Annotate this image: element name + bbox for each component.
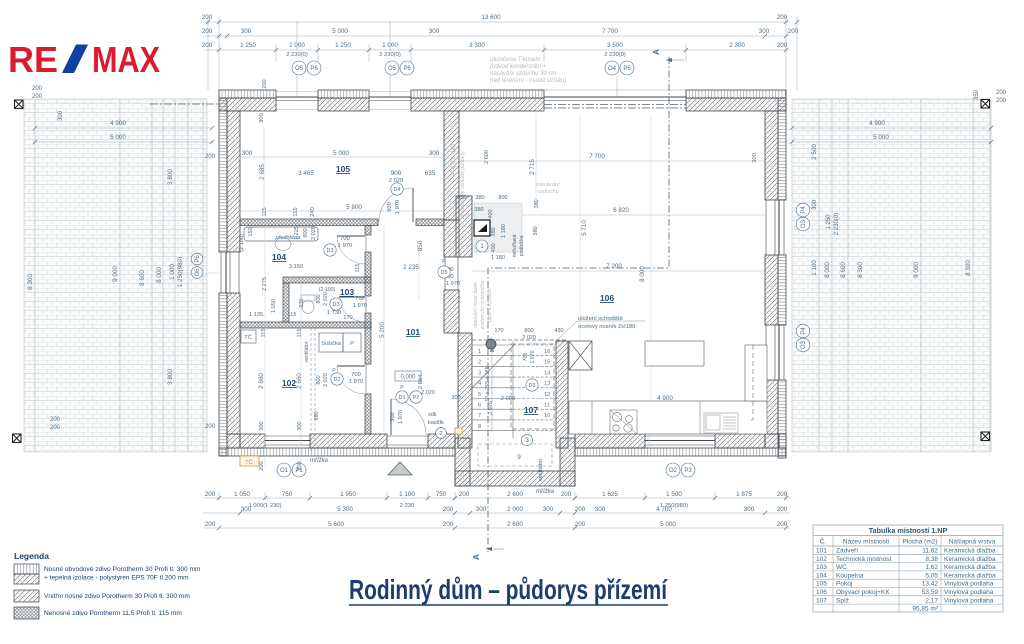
svg-text:TČ: TČ [244, 334, 252, 341]
svg-text:300: 300 [759, 28, 770, 35]
svg-text:2 020: 2 020 [323, 292, 329, 306]
svg-text:2: 2 [478, 360, 481, 366]
svg-text:103: 103 [340, 287, 354, 297]
svg-text:16: 16 [544, 349, 550, 355]
svg-text:1 250: 1 250 [826, 214, 832, 230]
svg-text:1 100: 1 100 [399, 491, 415, 498]
svg-text:1 050: 1 050 [271, 299, 277, 313]
svg-text:380: 380 [475, 195, 484, 201]
svg-text:8 000: 8 000 [824, 262, 831, 278]
svg-text:200: 200 [259, 461, 265, 470]
svg-text:115: 115 [288, 312, 297, 318]
svg-text:115: 115 [293, 207, 299, 216]
svg-text:200: 200 [205, 491, 216, 498]
svg-text:800: 800 [316, 294, 322, 303]
svg-text:Legenda: Legenda [14, 551, 49, 561]
svg-text:zvolen dle vybraného: zvolen dle vybraného [480, 280, 486, 330]
svg-text:3 465: 3 465 [298, 170, 314, 177]
svg-text:(2 100): (2 100) [239, 234, 245, 252]
svg-text:400: 400 [488, 209, 494, 218]
svg-text:1 135: 1 135 [249, 312, 264, 318]
svg-text:9 000: 9 000 [112, 266, 119, 282]
svg-text:O1: O1 [280, 468, 289, 474]
svg-text:380: 380 [491, 227, 497, 236]
svg-text:101: 101 [816, 548, 827, 555]
svg-text:mřížka: mřížka [310, 458, 329, 464]
svg-text:115: 115 [262, 207, 268, 216]
svg-text:Plocha (m2): Plocha (m2) [902, 539, 937, 546]
svg-text:P4: P4 [801, 327, 807, 335]
svg-text:ventilátor: ventilátor [538, 459, 544, 482]
svg-text:Zádveří: Zádveří [836, 548, 858, 555]
svg-text:200: 200 [262, 79, 268, 88]
svg-text:Nosné obvodové zdivo Porotherm: Nosné obvodové zdivo Porotherm 30 Profi … [44, 566, 201, 573]
svg-text:2 500: 2 500 [811, 144, 818, 160]
svg-text:1 970: 1 970 [353, 303, 367, 309]
svg-text:2 000: 2 000 [507, 506, 523, 513]
svg-text:kastlík: kastlík [428, 420, 444, 426]
svg-text:200: 200 [32, 94, 43, 100]
svg-text:2 300: 2 300 [729, 42, 745, 49]
svg-text:700: 700 [351, 372, 361, 378]
svg-text:106: 106 [816, 589, 827, 596]
svg-text:2: 2 [440, 431, 443, 437]
svg-text:(odvod kondenzátu +: (odvod kondenzátu + [490, 64, 547, 70]
svg-text:200: 200 [297, 461, 303, 470]
svg-text:7 700: 7 700 [602, 28, 618, 35]
svg-text:300: 300 [58, 110, 64, 121]
svg-text:700: 700 [340, 236, 350, 242]
svg-text:5 000: 5 000 [333, 150, 349, 157]
svg-text:380: 380 [534, 199, 540, 208]
svg-text:O6: O6 [195, 268, 201, 277]
svg-text:150: 150 [248, 227, 254, 236]
svg-text:850: 850 [417, 240, 424, 251]
svg-text:200: 200 [205, 154, 216, 160]
svg-text:900: 900 [391, 170, 402, 177]
svg-text:P5: P5 [623, 66, 631, 72]
svg-text:5 200: 5 200 [379, 322, 386, 338]
svg-text:380: 380 [533, 226, 539, 235]
svg-text:5 300: 5 300 [337, 506, 353, 513]
svg-text:Č.: Č. [820, 537, 827, 546]
svg-text:200: 200 [202, 42, 213, 49]
svg-text:1 970: 1 970 [338, 243, 353, 249]
svg-text:nad terénem - osadit stříšku): nad terénem - osadit stříšku) [490, 78, 566, 84]
svg-text:3: 3 [478, 370, 481, 376]
svg-text:A: A [651, 49, 661, 55]
svg-text:300: 300 [744, 506, 755, 513]
svg-text:nehořlavá: nehořlavá [512, 234, 518, 257]
svg-text:200: 200 [443, 506, 454, 513]
svg-text:2 660: 2 660 [258, 373, 265, 389]
svg-text:105: 105 [336, 164, 350, 174]
svg-text:3 800: 3 800 [167, 169, 174, 185]
svg-text:1 000: 1 000 [289, 42, 305, 49]
svg-text:200: 200 [996, 90, 1007, 96]
svg-text:1 250: 1 250 [335, 42, 351, 49]
svg-text:240: 240 [310, 207, 316, 217]
svg-text:P6: P6 [403, 66, 411, 72]
svg-text:A: A [471, 554, 481, 560]
svg-text:700: 700 [355, 296, 364, 302]
svg-text:1 875: 1 875 [736, 491, 752, 498]
svg-text:Koupelna: Koupelna [836, 572, 864, 579]
svg-text:2 235: 2 235 [403, 264, 419, 271]
svg-text:13,42: 13,42 [922, 581, 939, 588]
svg-text:D3: D3 [327, 248, 334, 254]
svg-text:1 970: 1 970 [398, 410, 404, 424]
svg-text:200: 200 [777, 491, 788, 498]
svg-text:300: 300 [543, 506, 554, 513]
svg-text:vzduchu: vzduchu [537, 189, 559, 195]
svg-text:102: 102 [816, 556, 827, 563]
svg-text:2 020: 2 020 [323, 373, 329, 387]
svg-text:Vinylová podlaha: Vinylová podlaha [944, 597, 994, 604]
svg-text:300: 300 [241, 28, 252, 35]
svg-text:2,17: 2,17 [925, 597, 938, 604]
svg-text:430: 430 [554, 328, 563, 334]
svg-text:Název místnosti: Název místnosti [843, 539, 889, 546]
svg-text:11,62: 11,62 [922, 548, 938, 555]
svg-text:750: 750 [282, 491, 293, 498]
svg-text:Spíž: Spíž [836, 597, 849, 604]
svg-text:1 500: 1 500 [666, 491, 682, 498]
svg-text:2 020: 2 020 [311, 226, 317, 240]
svg-text:635: 635 [425, 170, 436, 177]
svg-text:1,62: 1,62 [925, 564, 938, 571]
svg-text:300: 300 [812, 199, 818, 210]
svg-text:MAX: MAX [92, 39, 160, 80]
svg-text:350: 350 [974, 89, 980, 100]
svg-text:10: 10 [544, 413, 550, 419]
svg-text:170: 170 [494, 328, 503, 334]
svg-text:Rodinný dům – půdorys přízemí: Rodinný dům – půdorys přízemí [349, 574, 668, 605]
svg-text:200: 200 [561, 491, 572, 498]
svg-text:P6: P6 [310, 66, 318, 72]
svg-text:200: 200 [777, 42, 788, 49]
svg-text:6: 6 [478, 403, 481, 409]
svg-text:1 000: 1 000 [169, 264, 176, 280]
svg-text:8 000: 8 000 [156, 267, 163, 283]
svg-text:5 800: 5 800 [346, 204, 362, 211]
svg-text:Technická místnost: Technická místnost [836, 556, 891, 563]
svg-text:200: 200 [443, 521, 454, 528]
svg-text:200: 200 [777, 521, 788, 528]
svg-text:700: 700 [523, 353, 529, 362]
svg-text:P: P [350, 341, 354, 347]
svg-text:Nenosné zdivo Porotherm 11,5 P: Nenosné zdivo Porotherm 11,5 Profi tl. 1… [44, 610, 182, 617]
svg-text:O5: O5 [388, 66, 397, 72]
svg-text:Pokoj: Pokoj [836, 581, 852, 588]
svg-text:O5: O5 [295, 66, 304, 72]
svg-text:1 050: 1 050 [234, 491, 250, 498]
svg-text:8 300: 8 300 [965, 260, 972, 276]
svg-text:900: 900 [390, 412, 396, 421]
svg-text:O2: O2 [669, 468, 678, 474]
svg-text:typu a výrobce: typu a výrobce [487, 288, 493, 322]
svg-text:ventilátor: ventilátor [304, 341, 310, 362]
svg-text:105: 105 [816, 581, 827, 588]
svg-text:1 625: 1 625 [602, 491, 618, 498]
svg-text:Keramická dlažba: Keramická dlažba [944, 572, 996, 579]
svg-text:Keramická dlažba: Keramická dlažba [944, 564, 996, 571]
svg-text:2 230: 2 230 [400, 503, 415, 509]
svg-text:5 600: 5 600 [328, 521, 344, 528]
svg-text:2 600: 2 600 [484, 150, 490, 164]
svg-text:P3: P3 [684, 468, 692, 474]
svg-text:P: P [400, 385, 404, 391]
svg-text:P: P [332, 368, 336, 374]
svg-text:200: 200 [996, 98, 1007, 104]
svg-text:200: 200 [788, 28, 799, 35]
svg-text:115: 115 [355, 264, 361, 273]
svg-text:1 970: 1 970 [349, 379, 364, 385]
svg-text:O3: O3 [801, 340, 807, 349]
svg-text:2 230(0): 2 230(0) [379, 52, 401, 58]
svg-text:7 700: 7 700 [589, 153, 605, 160]
svg-text:3 300: 3 300 [469, 42, 485, 49]
svg-text:300: 300 [297, 421, 303, 430]
svg-text:4 900: 4 900 [110, 120, 126, 127]
svg-text:300: 300 [476, 506, 487, 513]
svg-text:800: 800 [498, 195, 507, 201]
svg-text:115: 115 [297, 329, 303, 338]
svg-text:1 970: 1 970 [530, 350, 536, 363]
svg-text:1 000(1 230): 1 000(1 230) [249, 503, 282, 509]
svg-text:+ tepelná izolace - polystyren: + tepelná izolace - polystyren EPS 70F t… [44, 575, 189, 582]
svg-text:200: 200 [205, 521, 216, 528]
svg-text:Vinylová podlaha: Vinylová podlaha [944, 589, 994, 596]
svg-text:Nášlapná vrstva: Nášlapná vrstva [949, 539, 996, 546]
svg-text:D1: D1 [399, 395, 406, 401]
svg-text:8 000: 8 000 [639, 266, 646, 282]
svg-text:Sušička: Sušička [321, 341, 341, 347]
svg-text:53,59: 53,59 [922, 589, 939, 596]
svg-text:300: 300 [241, 506, 252, 513]
svg-text:300: 300 [429, 28, 440, 35]
svg-text:6 820: 6 820 [613, 207, 629, 214]
svg-text:2 685: 2 685 [259, 164, 266, 180]
svg-text:1 100: 1 100 [811, 260, 818, 276]
svg-text:200: 200 [459, 491, 470, 498]
svg-text:200: 200 [777, 14, 788, 21]
svg-text:17 x 255 x 185: 17 x 255 x 185 [485, 366, 491, 401]
svg-text:D5: D5 [441, 270, 448, 276]
svg-text:750: 750 [436, 491, 447, 498]
svg-text:podložka: podložka [519, 236, 525, 257]
svg-text:103: 103 [816, 564, 827, 571]
svg-text:1 225: 1 225 [294, 226, 300, 240]
svg-text:RE: RE [8, 39, 58, 80]
svg-text:5 000: 5 000 [660, 521, 676, 528]
svg-text:300: 300 [259, 421, 265, 430]
svg-text:2 660: 2 660 [296, 373, 303, 389]
svg-text:2 000: 2 000 [501, 396, 516, 402]
svg-text:800: 800 [316, 375, 322, 384]
svg-text:P: P [442, 259, 446, 265]
svg-text:P6: P6 [195, 255, 201, 263]
svg-text:(2 100): (2 100) [319, 287, 336, 293]
svg-text:800: 800 [524, 328, 533, 334]
svg-text:umístěno ve skladbě podlahy: umístěno ve skladbě podlahy [460, 151, 466, 219]
svg-text:1 180: 1 180 [501, 224, 507, 238]
svg-text:Vinylová podlaha: Vinylová podlaha [944, 581, 994, 588]
svg-text:200: 200 [50, 425, 61, 431]
svg-text:115: 115 [261, 329, 267, 338]
svg-text:O3: O3 [801, 219, 807, 228]
svg-text:D2: D2 [334, 377, 341, 383]
svg-text:1 000: 1 000 [382, 42, 398, 49]
svg-text:1 250(980): 1 250(980) [177, 257, 184, 287]
svg-text:106: 106 [600, 293, 614, 303]
svg-text:2 230(0): 2 230(0) [834, 213, 840, 235]
svg-text:300: 300 [451, 395, 460, 401]
svg-text:400: 400 [491, 243, 497, 252]
svg-text:300: 300 [429, 150, 440, 157]
svg-text:104: 104 [816, 572, 827, 579]
svg-text:7 200: 7 200 [606, 263, 622, 270]
svg-text:200: 200 [32, 86, 43, 92]
svg-text:200: 200 [50, 417, 61, 423]
svg-text:5 000: 5 000 [332, 28, 348, 35]
svg-text:2 230(0): 2 230(0) [286, 52, 308, 58]
svg-text:1 730: 1 730 [327, 310, 342, 316]
svg-text:5 000: 5 000 [873, 134, 889, 141]
svg-text:WC: WC [836, 564, 847, 571]
svg-text:1 950: 1 950 [340, 491, 356, 498]
svg-text:1 250: 1 250 [240, 42, 256, 49]
svg-text:stavební otvor bude: stavební otvor bude [473, 282, 479, 328]
svg-text:8: 8 [478, 424, 481, 430]
svg-text:12: 12 [544, 392, 550, 398]
svg-text:3 500: 3 500 [607, 42, 623, 49]
svg-text:2 600: 2 600 [507, 521, 523, 528]
svg-text:2 975: 2 975 [488, 401, 494, 415]
svg-text:107: 107 [524, 405, 538, 415]
svg-text:8 600: 8 600 [139, 270, 146, 286]
svg-text:5 000: 5 000 [110, 134, 126, 141]
svg-text:1: 1 [478, 349, 481, 355]
svg-text:380: 380 [474, 207, 483, 213]
svg-text:TČ: TČ [245, 459, 253, 466]
svg-text:0,000: 0,000 [400, 375, 416, 381]
svg-text:5 710: 5 710 [581, 220, 588, 236]
svg-text:200: 200 [777, 506, 788, 513]
svg-text:8,38: 8,38 [925, 556, 938, 563]
svg-text:4 900: 4 900 [869, 120, 885, 127]
svg-text:4 700: 4 700 [656, 506, 672, 513]
svg-text:D4: D4 [394, 187, 401, 193]
svg-text:13: 13 [544, 381, 550, 387]
svg-text:1 970: 1 970 [395, 200, 401, 215]
svg-text:1 970: 1 970 [446, 281, 460, 287]
svg-text:300: 300 [752, 153, 758, 163]
svg-text:2 230(0): 2 230(0) [604, 52, 626, 58]
svg-text:5,05: 5,05 [925, 572, 938, 579]
svg-text:7: 7 [478, 413, 481, 419]
svg-text:8 300: 8 300 [857, 262, 864, 278]
svg-text:Keramická dlažba: Keramická dlažba [944, 548, 996, 555]
svg-text:PVC KG 160: PVC KG 160 [451, 143, 457, 176]
svg-text:Vnitřní nosné zdivo Porotherm: Vnitřní nosné zdivo Porotherm 30 Profi t… [44, 593, 190, 600]
svg-text:D3: D3 [333, 302, 340, 308]
svg-text:101: 101 [406, 327, 420, 337]
svg-text:102: 102 [282, 378, 296, 388]
svg-text:8 300: 8 300 [27, 274, 34, 290]
svg-text:Tabulka místností 1.NP: Tabulka místností 1.NP [869, 526, 948, 535]
svg-text:14: 14 [544, 370, 550, 376]
svg-text:4: 4 [478, 381, 481, 387]
svg-text:nasávání: nasávání [536, 182, 561, 188]
svg-text:104: 104 [272, 252, 286, 262]
svg-text:mřížka: mřížka [536, 489, 555, 495]
svg-text:nasávání vzduchu 30 cm: nasávání vzduchu 30 cm [490, 71, 556, 77]
svg-text:8 600: 8 600 [840, 262, 847, 278]
svg-text:D3: D3 [529, 383, 536, 389]
svg-text:200: 200 [205, 424, 216, 430]
svg-text:13 600: 13 600 [481, 14, 501, 21]
svg-text:2 020: 2 020 [421, 390, 435, 396]
svg-text:O4: O4 [608, 66, 617, 72]
svg-text:9 000: 9 000 [913, 262, 920, 278]
svg-text:500: 500 [457, 195, 466, 201]
svg-text:200: 200 [202, 28, 213, 35]
svg-text:ukončena T-kusem: ukončena T-kusem [490, 57, 540, 63]
svg-text:300: 300 [259, 113, 265, 123]
svg-text:95,85 m²: 95,85 m² [912, 606, 938, 613]
svg-text:107: 107 [816, 597, 827, 604]
svg-text:P4: P4 [801, 206, 807, 214]
svg-text:15: 15 [544, 360, 550, 366]
svg-text:5: 5 [478, 392, 481, 398]
svg-text:ocelový nosník 2xI180: ocelový nosník 2xI180 [578, 324, 635, 330]
svg-text:1 180: 1 180 [491, 255, 505, 261]
svg-text:11: 11 [544, 403, 550, 409]
svg-text:800: 800 [303, 228, 309, 237]
svg-text:Keramická dlažba: Keramická dlažba [944, 556, 996, 563]
svg-text:300: 300 [595, 506, 606, 513]
svg-text:P2: P2 [413, 395, 420, 401]
svg-text:800: 800 [387, 202, 393, 212]
svg-text:170: 170 [343, 315, 352, 321]
svg-text:3 800: 3 800 [167, 369, 174, 385]
svg-text:2 600: 2 600 [507, 491, 523, 498]
svg-text:200: 200 [202, 14, 213, 21]
svg-text:Obývací pokoj+KK: Obývací pokoj+KK [836, 589, 890, 596]
svg-text:300: 300 [242, 150, 253, 157]
svg-text:sdk: sdk [428, 412, 437, 418]
svg-text:3 150: 3 150 [289, 264, 304, 270]
